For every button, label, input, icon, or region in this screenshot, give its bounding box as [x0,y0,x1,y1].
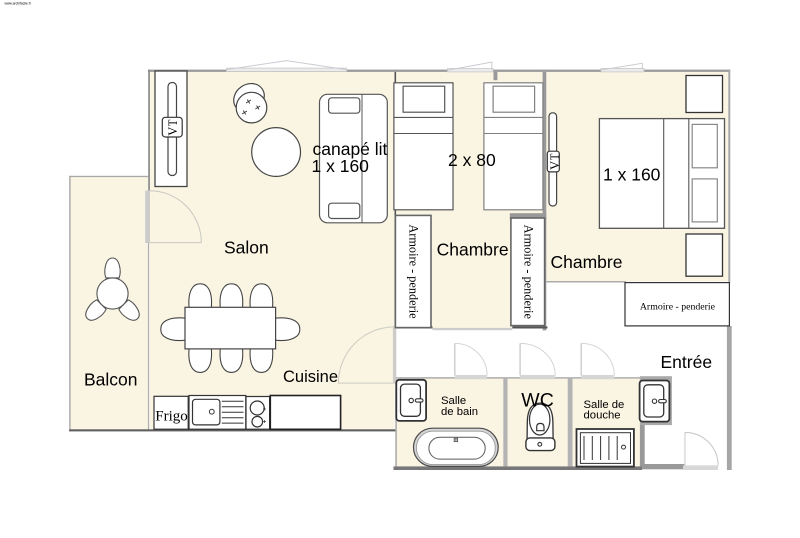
svg-text:T: T [166,119,180,126]
svg-text:Chambre: Chambre [437,240,509,260]
svg-text:V: V [166,127,180,136]
svg-text:douche: douche [584,409,621,421]
svg-text:Armoire - penderie: Armoire - penderie [407,224,421,319]
svg-text:Armoire - penderie: Armoire - penderie [521,225,535,320]
svg-text:T: T [548,153,562,160]
svg-text:www.archifacile.fr: www.archifacile.fr [5,2,32,6]
svg-text:Entrée: Entrée [661,352,713,372]
svg-text:Salon: Salon [224,237,269,257]
svg-text:Cuisine: Cuisine [283,368,338,386]
svg-text:1 x 160: 1 x 160 [312,156,370,176]
svg-text:Armoire - penderie: Armoire - penderie [640,301,716,312]
svg-text:Chambre: Chambre [551,252,623,272]
svg-text:2 x 80: 2 x 80 [448,150,496,170]
svg-text:1 x 160: 1 x 160 [603,165,661,185]
svg-text:V: V [548,161,562,170]
svg-text:WC: WC [521,390,554,412]
svg-text:Frigo: Frigo [155,408,188,424]
svg-text:de bain: de bain [441,406,478,418]
svg-text:Balcon: Balcon [84,370,138,390]
